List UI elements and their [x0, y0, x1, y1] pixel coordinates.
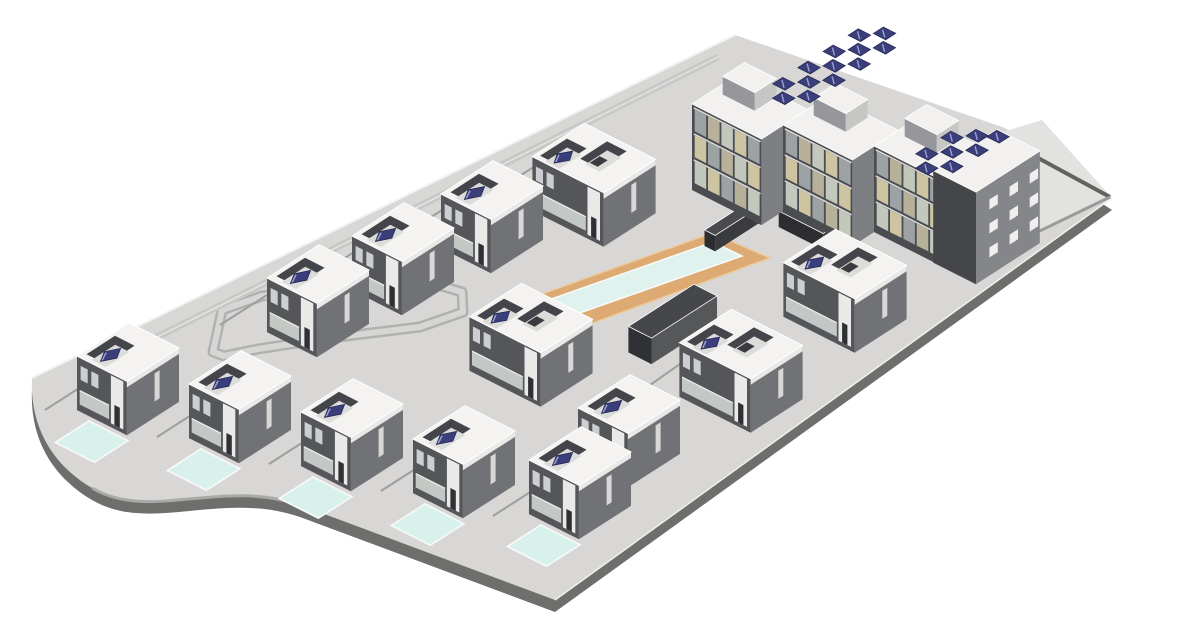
se-window-slit [491, 453, 496, 484]
entry-door [528, 376, 533, 399]
entry-door [842, 322, 847, 345]
entry-door [304, 327, 309, 350]
entry-door [338, 461, 343, 484]
solar-panel [848, 58, 871, 71]
entry-door [738, 402, 743, 425]
site-rendering-svg [0, 0, 1200, 640]
se-window-slit [519, 208, 524, 239]
se-window-slit [155, 370, 160, 401]
se-window-slit [607, 474, 612, 505]
se-window-slit [379, 426, 384, 457]
entry-door [114, 405, 119, 428]
architectural-rendering [0, 0, 1200, 640]
se-window-slit [882, 288, 887, 319]
entry-door [478, 243, 483, 266]
se-window-slit [345, 292, 350, 323]
solar-panel [848, 43, 871, 56]
se-window-slit [778, 368, 783, 399]
entry-door [389, 285, 394, 308]
se-window-slit [430, 250, 435, 281]
solar-panel [873, 41, 896, 54]
solar-panel [823, 45, 846, 58]
entry-door [591, 216, 596, 239]
se-window-slit [267, 398, 272, 429]
se-window-slit [656, 422, 661, 453]
entry-door [450, 488, 455, 511]
entry-door [226, 433, 231, 456]
entry-door [566, 509, 571, 532]
se-window-slit [568, 342, 573, 373]
solar-panel [848, 29, 871, 42]
solar-panel [873, 27, 896, 40]
se-window-slit [631, 182, 636, 213]
